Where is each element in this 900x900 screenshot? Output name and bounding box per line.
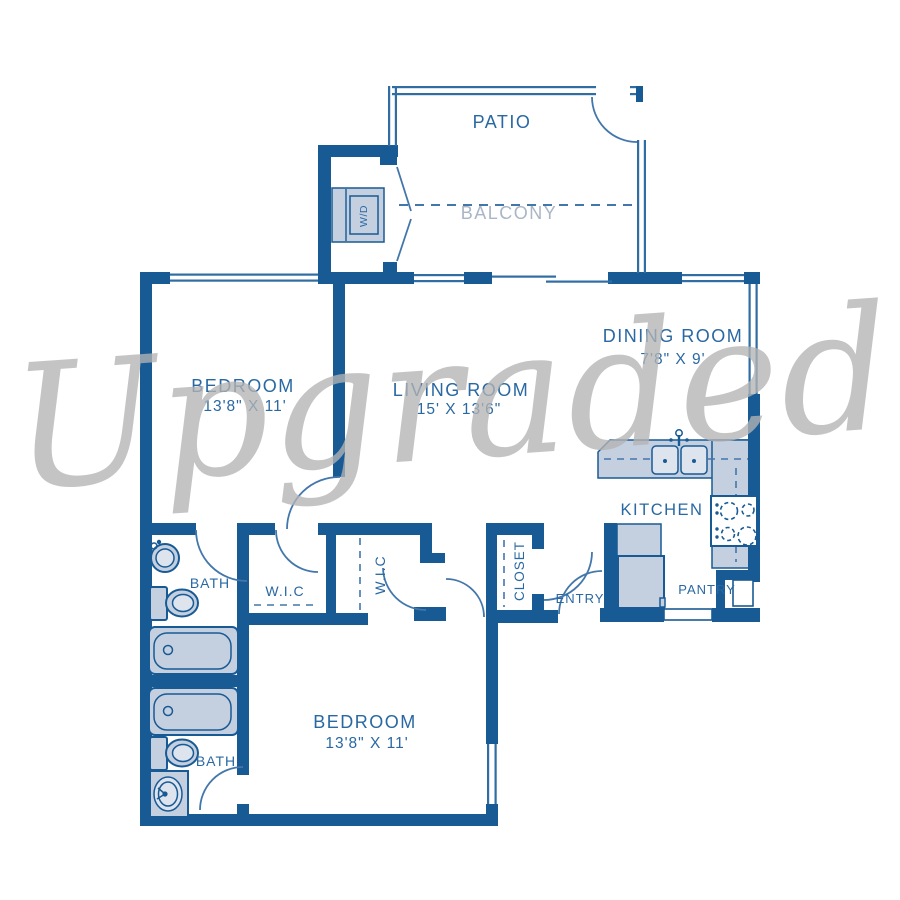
room-label-pantry: PANTRY bbox=[678, 582, 736, 597]
room-label-closet: CLOSET bbox=[512, 541, 527, 601]
wic-left-door-arc bbox=[276, 530, 318, 572]
room-label-bath-bottom: BATH bbox=[196, 753, 236, 769]
floor-plan-page: W/D bbox=[0, 0, 900, 900]
room-label-kitchen: KITCHEN bbox=[621, 501, 704, 519]
bathtub-bottom-icon bbox=[149, 688, 238, 735]
room-label-patio: PATIO bbox=[473, 112, 532, 132]
room-label-balcony: BALCONY bbox=[461, 203, 558, 223]
bath-bottom-toilet-icon bbox=[150, 737, 198, 770]
bath-bottom-door-arc bbox=[200, 767, 243, 810]
bathtub-top-icon bbox=[149, 627, 238, 674]
pantry-door-leaf bbox=[733, 580, 753, 606]
room-label-bath-top: BATH bbox=[190, 575, 230, 591]
room-label-wic-left: W.I.C bbox=[265, 583, 304, 599]
pantry-opening-door bbox=[664, 609, 712, 620]
bath-top-toilet-icon bbox=[150, 587, 198, 620]
room-label-wic-right: W.I.C bbox=[372, 555, 388, 594]
room-label-bedroom-bottom: BEDROOM bbox=[313, 712, 417, 732]
balcony-bifold-door bbox=[397, 167, 411, 261]
wic-right-door-arc bbox=[383, 568, 426, 610]
room-dims-bedroom-bottom: 13'8" X 11' bbox=[325, 735, 408, 752]
floor-plan: W/D bbox=[0, 0, 900, 900]
washer-dryer-icon: W/D bbox=[332, 188, 384, 242]
watermark-text: Upgraded bbox=[6, 268, 898, 530]
bedroom-bottom-door-arc bbox=[446, 579, 484, 617]
stove-icon bbox=[711, 496, 757, 546]
washer-dryer-label: W/D bbox=[358, 205, 370, 227]
patio-door-arc bbox=[592, 97, 637, 142]
bath-bottom-sink-icon bbox=[150, 771, 188, 817]
fridge-icon bbox=[617, 524, 665, 608]
room-label-entry: ENTRY bbox=[556, 591, 605, 606]
sliding-door bbox=[492, 276, 612, 283]
